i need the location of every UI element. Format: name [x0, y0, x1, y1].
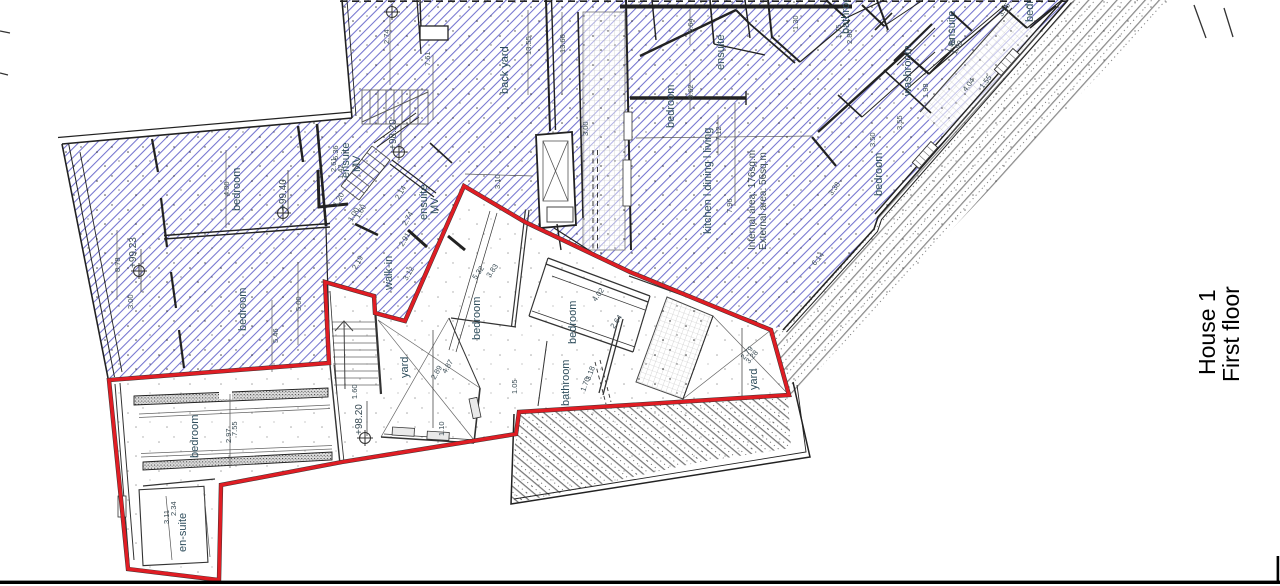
svg-text:bedroom: bedroom: [665, 85, 677, 128]
svg-text:yard: yard: [748, 369, 760, 390]
svg-text:House 1: House 1: [1194, 289, 1220, 375]
svg-text:3.62: 3.62: [686, 84, 695, 99]
svg-text:bathroom: bathroom: [560, 360, 572, 406]
svg-text:7.96: 7.96: [725, 198, 734, 213]
svg-text:kitchen l dining l living: kitchen l dining l living: [702, 128, 714, 234]
svg-text:+99.40: +99.40: [278, 179, 289, 210]
svg-text:7.61: 7.61: [423, 51, 432, 66]
svg-text:bedroom: bedroom: [567, 301, 579, 344]
svg-text:+98.20: +98.20: [354, 404, 365, 435]
svg-text:First floor: First floor: [1218, 286, 1244, 382]
svg-text:ensuite: ensuite: [715, 35, 727, 70]
svg-text:2.85: 2.85: [845, 29, 854, 44]
svg-text:yard: yard: [399, 357, 411, 378]
svg-text:bedroom: bedroom: [189, 415, 201, 458]
svg-text:en-suite: en-suite: [177, 513, 189, 552]
svg-text:bedroom: bedroom: [873, 153, 885, 196]
svg-text:8.78: 8.78: [113, 257, 122, 272]
svg-text:3.50: 3.50: [868, 132, 877, 147]
svg-text:External area: 56sq.m: External area: 56sq.m: [758, 152, 769, 250]
svg-text:3.00: 3.00: [581, 121, 590, 136]
svg-text:bedroom: bedroom: [1024, 0, 1036, 22]
svg-text:1.98: 1.98: [921, 83, 930, 98]
svg-text:5.46: 5.46: [271, 328, 280, 343]
svg-text:Internal area: 176sq.m: Internal area: 176sq.m: [747, 150, 758, 250]
svg-text:3.55: 3.55: [895, 115, 904, 130]
svg-text:1.60: 1.60: [350, 384, 359, 399]
svg-text:MV: MV: [351, 155, 363, 172]
svg-text:bedroom: bedroom: [471, 297, 483, 340]
svg-text:7.12: 7.12: [714, 126, 723, 141]
svg-text:+99.23: +99.23: [128, 237, 139, 268]
svg-text:3.11: 3.11: [162, 510, 171, 524]
svg-text:3.00: 3.00: [126, 294, 135, 309]
svg-text:+98.20: +98.20: [388, 119, 399, 150]
svg-text:3.10: 3.10: [493, 174, 502, 189]
svg-text:5.64: 5.64: [686, 18, 695, 33]
svg-text:MV: MV: [429, 197, 441, 214]
svg-text:walk-in: walk-in: [383, 256, 395, 291]
svg-text:1.10: 1.10: [437, 421, 446, 436]
svg-text:washroom: washroom: [902, 45, 914, 97]
svg-text:2.74: 2.74: [382, 29, 391, 44]
svg-text:1.30: 1.30: [791, 15, 800, 30]
svg-text:7.55: 7.55: [230, 421, 239, 436]
svg-text:1.75: 1.75: [834, 24, 843, 39]
svg-text:5.00: 5.00: [294, 296, 303, 311]
svg-text:bedroom: bedroom: [237, 288, 249, 331]
svg-text:back yard: back yard: [499, 46, 511, 94]
svg-text:13.55: 13.55: [524, 36, 533, 55]
svg-text:1.05: 1.05: [510, 379, 519, 394]
svg-text:bedroom: bedroom: [231, 168, 243, 211]
svg-text:13.60: 13.60: [558, 34, 567, 53]
svg-text:1.42: 1.42: [336, 164, 345, 179]
svg-text:4.00: 4.00: [222, 181, 231, 196]
